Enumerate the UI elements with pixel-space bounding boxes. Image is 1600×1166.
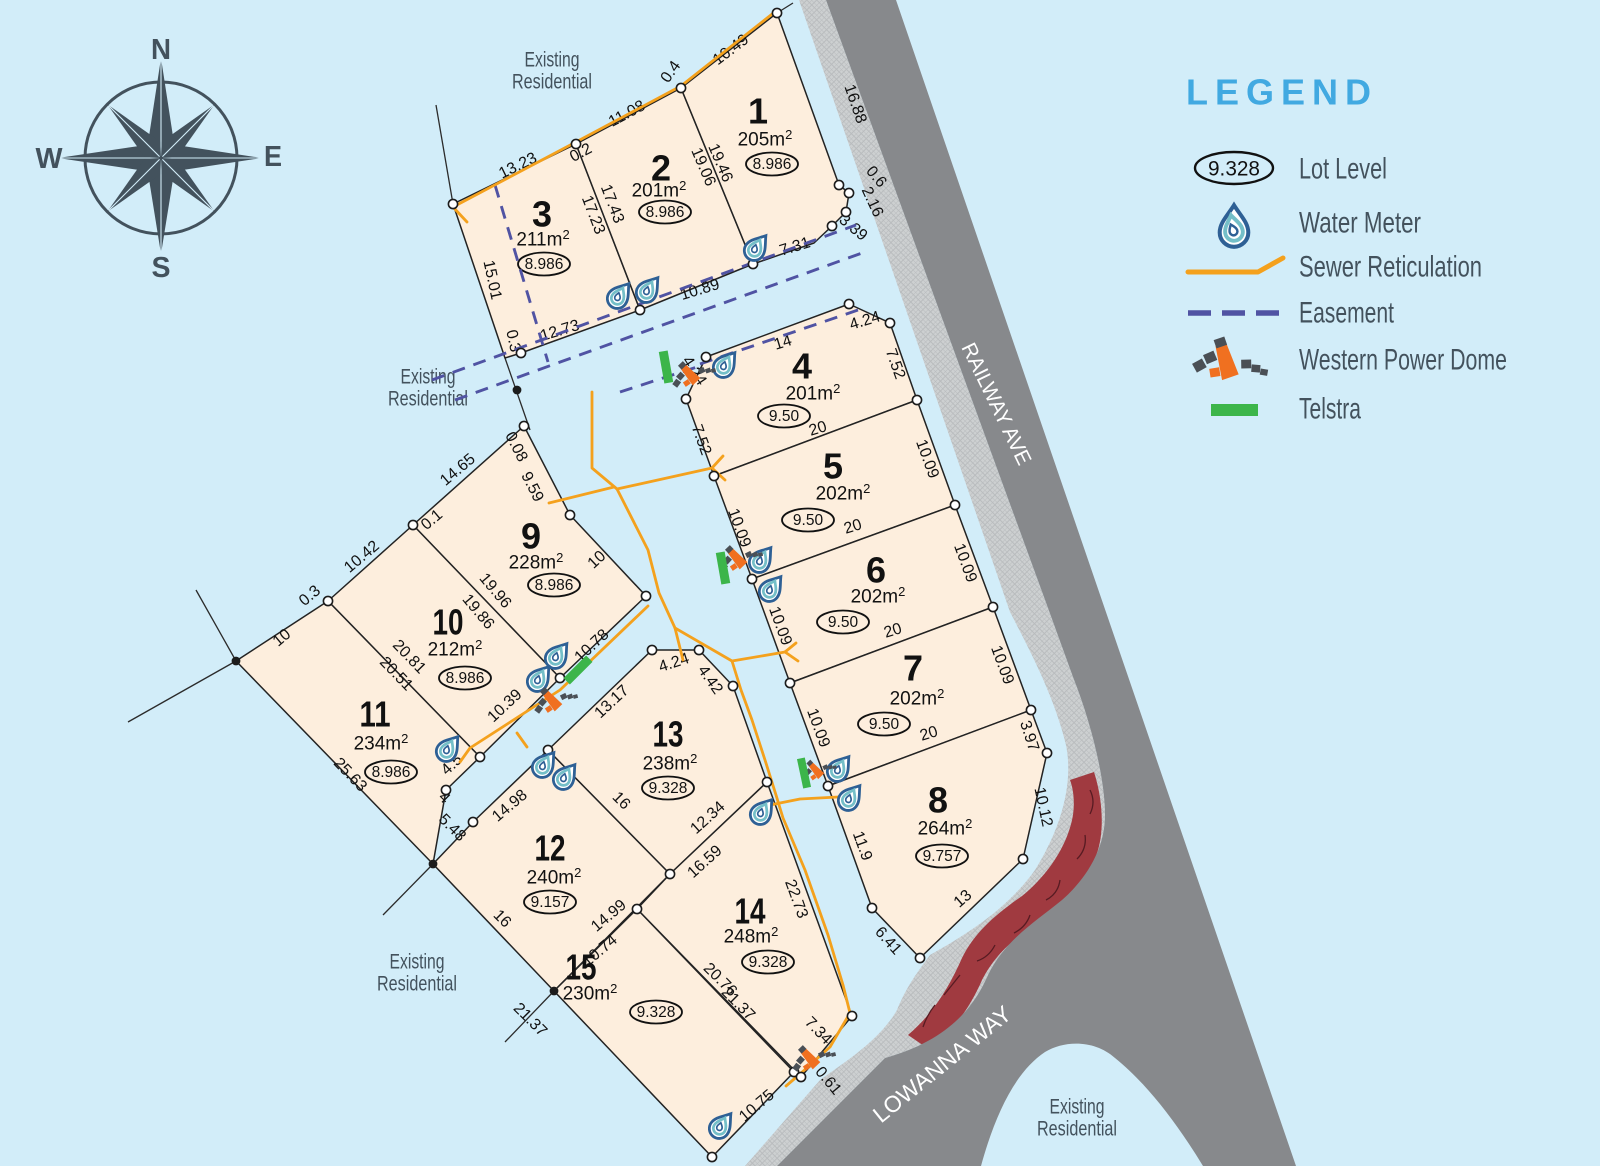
svg-text:202m2: 202m2	[816, 481, 871, 505]
svg-text:9.328: 9.328	[749, 954, 788, 971]
svg-text:248m2: 248m2	[724, 924, 779, 948]
svg-text:201m2: 201m2	[786, 381, 841, 405]
svg-text:Residential: Residential	[1037, 1118, 1117, 1141]
svg-text:205m2: 205m2	[738, 127, 793, 151]
svg-text:230m2: 230m2	[563, 981, 618, 1005]
svg-text:LEGEND: LEGEND	[1186, 72, 1378, 113]
svg-text:Existing: Existing	[401, 366, 456, 389]
svg-text:201m2: 201m2	[632, 178, 687, 202]
svg-text:8: 8	[928, 780, 948, 821]
svg-text:240m2: 240m2	[527, 865, 582, 889]
svg-text:9.50: 9.50	[828, 614, 859, 631]
svg-text:212m2: 212m2	[428, 637, 483, 661]
svg-text:Western Power Dome: Western Power Dome	[1299, 344, 1507, 377]
svg-text:6: 6	[866, 550, 886, 591]
svg-text:9.328: 9.328	[649, 780, 688, 797]
svg-text:8.986: 8.986	[525, 256, 564, 273]
svg-text:Residential: Residential	[512, 71, 592, 94]
svg-text:9.50: 9.50	[793, 512, 824, 529]
svg-text:3: 3	[532, 194, 552, 235]
svg-text:Telstra: Telstra	[1299, 393, 1361, 426]
svg-text:Easement: Easement	[1299, 297, 1394, 330]
svg-text:264m2: 264m2	[918, 816, 973, 840]
svg-text:Existing: Existing	[390, 951, 445, 974]
svg-text:9.328: 9.328	[637, 1004, 676, 1021]
svg-text:11: 11	[360, 694, 391, 735]
svg-text:9.157: 9.157	[531, 894, 570, 911]
svg-text:9.757: 9.757	[923, 848, 962, 865]
svg-text:10: 10	[433, 602, 464, 643]
svg-text:Existing: Existing	[525, 49, 580, 72]
svg-text:N: N	[151, 34, 171, 66]
svg-text:7: 7	[903, 648, 923, 689]
svg-text:S: S	[152, 252, 171, 284]
svg-text:14: 14	[735, 891, 766, 932]
svg-text:Residential: Residential	[377, 973, 457, 996]
svg-text:9.50: 9.50	[869, 716, 900, 733]
svg-text:W: W	[36, 143, 64, 175]
svg-text:9.50: 9.50	[769, 408, 800, 425]
svg-text:13: 13	[653, 714, 684, 755]
svg-text:8.986: 8.986	[372, 764, 411, 781]
svg-text:5: 5	[823, 446, 843, 487]
svg-text:Water Meter: Water Meter	[1299, 207, 1421, 240]
svg-text:12: 12	[535, 828, 566, 869]
svg-text:Existing: Existing	[1050, 1096, 1105, 1119]
svg-text:202m2: 202m2	[851, 584, 906, 608]
svg-text:9: 9	[521, 516, 541, 557]
svg-text:Lot Level: Lot Level	[1299, 153, 1387, 186]
svg-text:234m2: 234m2	[354, 731, 409, 755]
svg-text:9.328: 9.328	[1208, 158, 1260, 181]
svg-text:228m2: 228m2	[509, 550, 564, 574]
svg-text:202m2: 202m2	[890, 686, 945, 710]
svg-text:8.986: 8.986	[535, 577, 574, 594]
svg-text:211m2: 211m2	[516, 227, 569, 251]
svg-text:8.986: 8.986	[646, 204, 685, 221]
svg-text:4: 4	[792, 346, 812, 387]
svg-text:Sewer Reticulation: Sewer Reticulation	[1299, 251, 1482, 284]
svg-text:E: E	[264, 141, 282, 173]
svg-text:8.986: 8.986	[446, 670, 485, 687]
svg-text:8.986: 8.986	[753, 156, 792, 173]
svg-text:1: 1	[748, 91, 768, 132]
svg-text:238m2: 238m2	[643, 751, 698, 775]
